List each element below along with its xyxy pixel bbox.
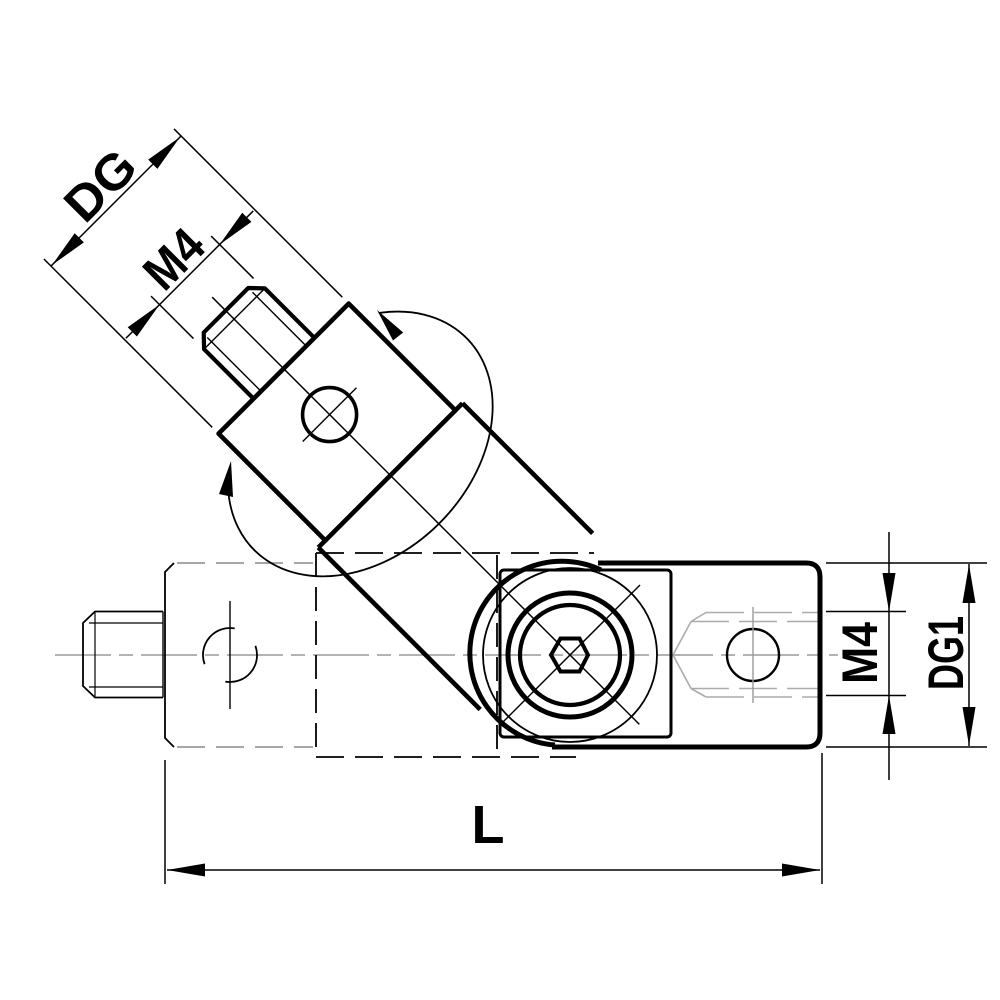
pivot-clevis [470,561,671,745]
stud-axis-centerline [212,297,639,724]
dg-arrow-up [148,132,184,168]
technical-drawing-page: DG M4 M4 [0,0,1000,1000]
dg1-arrow-up [963,565,976,604]
m4-body-arrow-down [883,573,896,612]
m4-stud-arrow-down [215,213,251,249]
dg1-label: DG1 [918,616,974,690]
length-arrow-left [167,864,205,877]
dg1-arrow-down [963,707,976,746]
dim-length: L [165,753,822,884]
dg-arrow-down [47,233,83,269]
m4-body-label: M4 [832,622,888,684]
dg-label: DG [53,138,148,233]
swivel-joint-technical-drawing: DG M4 M4 [0,0,1000,1000]
length-arrow-right [782,864,820,877]
m4-stud-label: M4 [132,217,216,301]
rotation-arrow-lower [219,461,233,497]
m4-stud-arrow-up [128,300,164,336]
length-label: L [472,795,505,855]
dim-m4-body: M4 [826,532,906,780]
m4-body-arrow-up [883,696,896,735]
rotation-arc [228,312,493,577]
